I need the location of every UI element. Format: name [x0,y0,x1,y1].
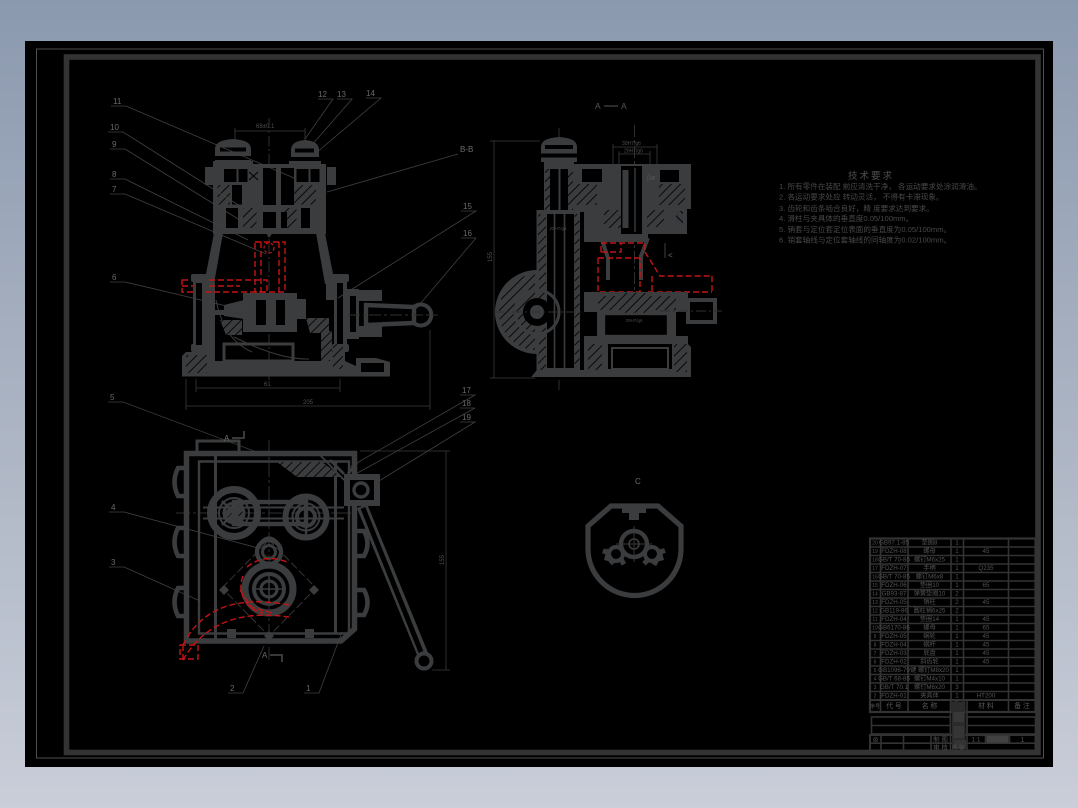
svg-text:A: A [224,434,230,443]
svg-text:底盘: 底盘 [923,649,935,657]
svg-text:˂: ˂ [668,251,673,260]
svg-text:螺钉M6x20: 螺钉M6x20 [914,683,946,691]
svg-text:18: 18 [462,399,471,408]
svg-text:45: 45 [983,599,990,606]
svg-text:65: 65 [983,582,990,589]
svg-text:垫圈14: 垫圈14 [920,615,940,623]
svg-text:备 注: 备 注 [1014,701,1030,710]
svg-text:A: A [262,651,268,660]
svg-text:1: 1 [955,659,959,666]
svg-text:9: 9 [112,140,117,149]
svg-text:6. 销套轴线与定位套轴线的同轴度为0.02/100mm。: 6. 销套轴线与定位套轴线的同轴度为0.02/100mm。 [779,234,951,244]
svg-text:技术要求: 技术要求 [848,170,894,182]
svg-text:2: 2 [955,599,959,606]
svg-text:20H7/g6: 20H7/g6 [549,226,567,231]
svg-text:61: 61 [264,382,271,388]
svg-text:19: 19 [872,549,878,555]
svg-text:键 螺钉M8x20: 键 螺钉M8x20 [910,666,949,674]
svg-text:制 图: 制 图 [933,735,948,744]
svg-text:2: 2 [230,684,235,693]
svg-text:审 核: 审 核 [933,743,948,752]
svg-text:7: 7 [874,651,877,657]
svg-text:1: 1 [955,582,959,589]
svg-text:17: 17 [872,566,878,572]
svg-text:GB97.1-85: GB97.1-85 [879,540,909,547]
svg-text:FDZH-04: FDZH-04 [881,616,907,623]
svg-text:4. 滑柱与夹具体的垂直度0.05/100mm。: 4. 滑柱与夹具体的垂直度0.05/100mm。 [779,213,913,223]
svg-text:FDZH-06: FDZH-06 [881,582,907,589]
svg-text:βø: βø [647,175,656,182]
svg-text:1:1: 1:1 [971,737,980,744]
svg-text:1: 1 [1021,737,1025,744]
svg-text:14: 14 [366,89,375,98]
svg-text:5: 5 [874,668,877,674]
svg-text:1: 1 [955,650,959,657]
svg-text:45: 45 [983,633,990,640]
svg-text:10: 10 [110,123,119,132]
svg-text:1: 1 [955,557,959,564]
svg-text:45: 45 [983,548,990,555]
svg-text:蜗杆: 蜗杆 [923,641,935,649]
svg-text:FDZH-03: FDZH-03 [881,650,907,657]
svg-text:1: 1 [955,616,959,623]
svg-text:11: 11 [872,617,877,623]
svg-text:蜗轮: 蜗轮 [923,632,935,640]
svg-text:4: 4 [874,677,877,683]
svg-text:6: 6 [112,273,117,282]
svg-text:13: 13 [337,90,346,99]
svg-text:弹簧垫圈10: 弹簧垫圈10 [914,590,946,598]
svg-text:1: 1 [955,548,959,555]
svg-text:45: 45 [983,659,990,666]
svg-text:1: 1 [955,693,959,700]
svg-text:2. 各运动要求处应 转动灵活， 不得有卡滞现象。: 2. 各运动要求处应 转动灵活， 不得有卡滞现象。 [779,192,944,202]
svg-text:205: 205 [303,400,314,406]
svg-text:1: 1 [955,633,959,640]
svg-text:圆柱销6x25: 圆柱销6x25 [914,607,947,615]
svg-text:斜齿轮: 斜齿轮 [920,658,939,666]
svg-text:13: 13 [872,600,878,606]
svg-text:1: 1 [955,574,959,581]
svg-text:155: 155 [488,251,494,262]
svg-text:夹具体: 夹具体 [920,692,939,700]
svg-text:GB119-86: GB119-86 [880,608,908,615]
svg-text:螺钉M4x10: 螺钉M4x10 [914,675,946,683]
svg-text:2: 2 [955,608,959,615]
svg-text:30H7/g6: 30H7/g6 [622,141,641,147]
svg-text:GB/T 68-85: GB/T 68-85 [878,676,910,683]
svg-text:155: 155 [440,554,446,565]
svg-text:12: 12 [872,609,878,615]
svg-text:FDZH-02: FDZH-02 [881,659,907,666]
svg-text:材 料: 材 料 [978,701,994,710]
svg-text:GB1096-79: GB1096-79 [878,667,910,674]
svg-text:GB/T 70-85: GB/T 70-85 [878,557,910,564]
svg-text:1: 1 [955,667,959,674]
svg-text:垫圈8: 垫圈8 [922,539,938,547]
svg-text:销柱: 销柱 [923,598,935,606]
svg-text:FDZH-08: FDZH-08 [881,548,907,555]
svg-text:15: 15 [463,202,472,211]
svg-text:20H7/g6: 20H7/g6 [624,149,643,155]
svg-text:1: 1 [955,540,959,547]
svg-text:3: 3 [874,685,877,691]
svg-text:7: 7 [112,185,117,194]
svg-text:15: 15 [872,583,878,589]
svg-text:螺母: 螺母 [923,547,935,555]
svg-text:序号: 序号 [870,703,880,710]
svg-text:螺母: 螺母 [923,624,935,632]
svg-text:螺钉M6x25: 螺钉M6x25 [914,556,946,564]
svg-text:30H7/g6: 30H7/g6 [625,318,643,323]
svg-text:代 号: 代 号 [886,701,902,710]
svg-text:A: A [621,101,627,111]
svg-text:5. 销套与定位套定位表面的垂直度为0.05/100mm。: 5. 销套与定位套定位表面的垂直度为0.05/100mm。 [779,224,951,234]
svg-text:共 张: 共 张 [952,744,965,752]
svg-text:68±0.1: 68±0.1 [256,124,275,130]
svg-text:B-B: B-B [460,145,473,154]
svg-text:14: 14 [872,592,878,598]
svg-text:1: 1 [955,625,959,632]
svg-text:45: 45 [983,642,990,649]
svg-text:垫圈10: 垫圈10 [920,581,940,589]
svg-text:12: 12 [318,90,327,99]
svg-text:6: 6 [874,660,877,666]
svg-text:手柄: 手柄 [923,564,935,572]
svg-text:FDZH-01: FDZH-01 [881,693,907,700]
svg-text:GB/T 70-85: GB/T 70-85 [878,574,910,581]
svg-text:A: A [595,101,601,111]
svg-text:17: 17 [462,386,471,395]
svg-text:螺钉M6x8: 螺钉M6x8 [916,573,944,581]
svg-text:4: 4 [111,503,116,512]
svg-text:45: 45 [983,616,990,623]
svg-text:10: 10 [872,626,878,632]
svg-text:1: 1 [955,676,959,683]
svg-text:GB93-87: GB93-87 [882,591,907,598]
svg-text:⊠: ⊠ [873,738,878,744]
svg-text:FDZH-04: FDZH-04 [881,642,907,649]
svg-text:GB6170-86: GB6170-86 [878,625,910,632]
svg-text:9: 9 [874,634,877,640]
svg-text:8: 8 [112,170,117,179]
svg-text:Q235: Q235 [978,565,994,572]
svg-text:C: C [635,477,641,486]
svg-text:3. 齿轮和齿条啮合良好，精 度要求达到要求。: 3. 齿轮和齿条啮合良好，精 度要求达到要求。 [779,203,934,213]
svg-text:1: 1 [955,565,959,572]
svg-text:3: 3 [111,558,116,567]
svg-text:65: 65 [983,625,990,632]
svg-text:2: 2 [874,694,877,700]
svg-text:16: 16 [463,229,472,238]
svg-text:5: 5 [110,393,115,402]
svg-text:1: 1 [306,684,311,693]
svg-text:11: 11 [113,97,122,106]
svg-text:2: 2 [955,591,959,598]
svg-text:1: 1 [955,642,959,649]
svg-text:FDZH-05: FDZH-05 [881,633,907,640]
svg-text:名 称: 名 称 [922,701,938,710]
svg-text:FDZH-05: FDZH-05 [881,599,907,606]
svg-text:1. 所有零件在装配 前应清洗干净， 各运动要求处涂润滑: 1. 所有零件在装配 前应清洗干净， 各运动要求处涂润滑油。 [779,181,982,191]
svg-text:3: 3 [955,684,959,691]
svg-text:FDZH-07: FDZH-07 [881,565,907,572]
svg-text:HT200: HT200 [977,693,996,700]
svg-text:8: 8 [874,643,877,649]
svg-text:GB/T 70.1: GB/T 70.1 [880,684,909,691]
svg-text:20: 20 [872,541,878,547]
svg-text:45: 45 [983,650,990,657]
